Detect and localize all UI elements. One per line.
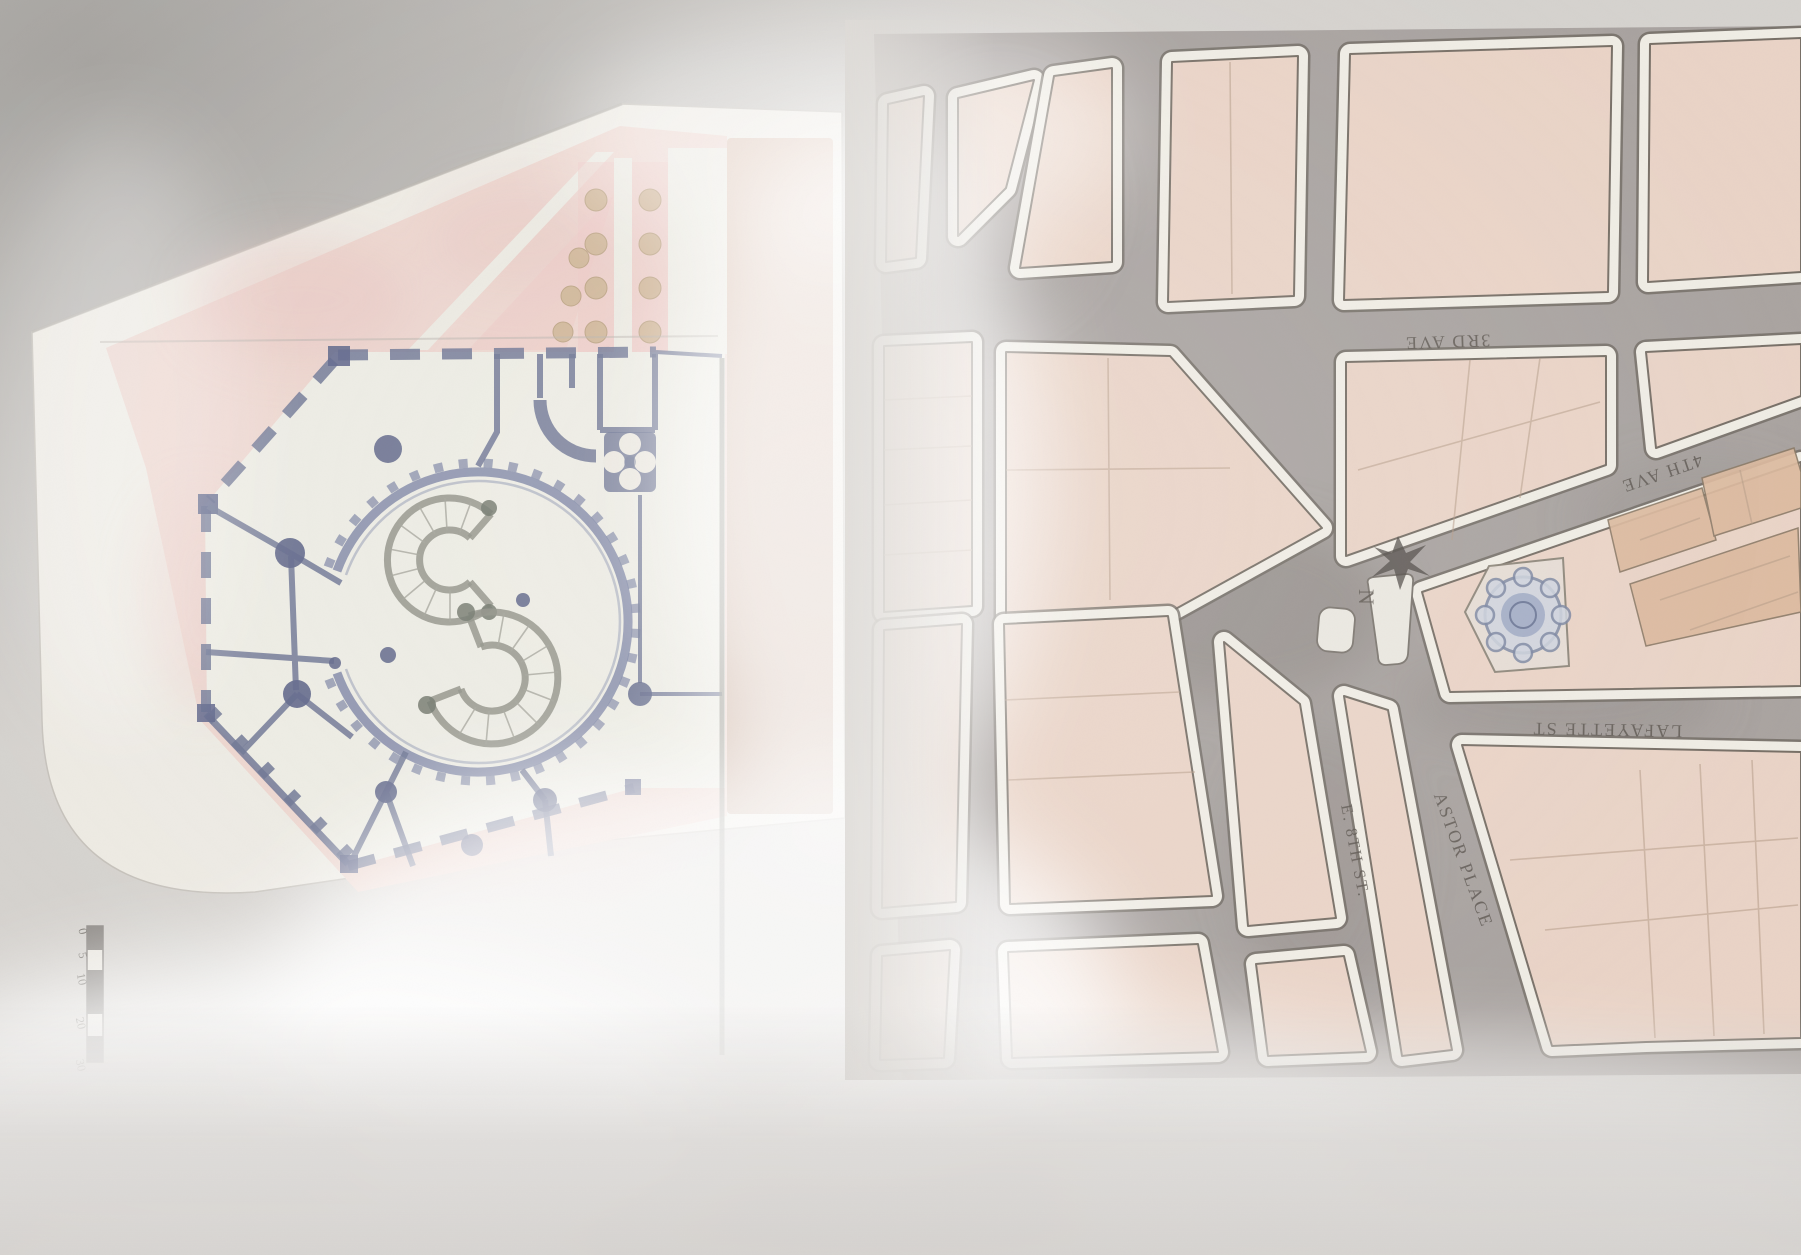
paper-grain	[0, 0, 1801, 1255]
drawing-canvas: 0 5 10 20 30	[0, 0, 1801, 1255]
watercolor-drawing: 0 5 10 20 30	[0, 0, 1801, 1255]
